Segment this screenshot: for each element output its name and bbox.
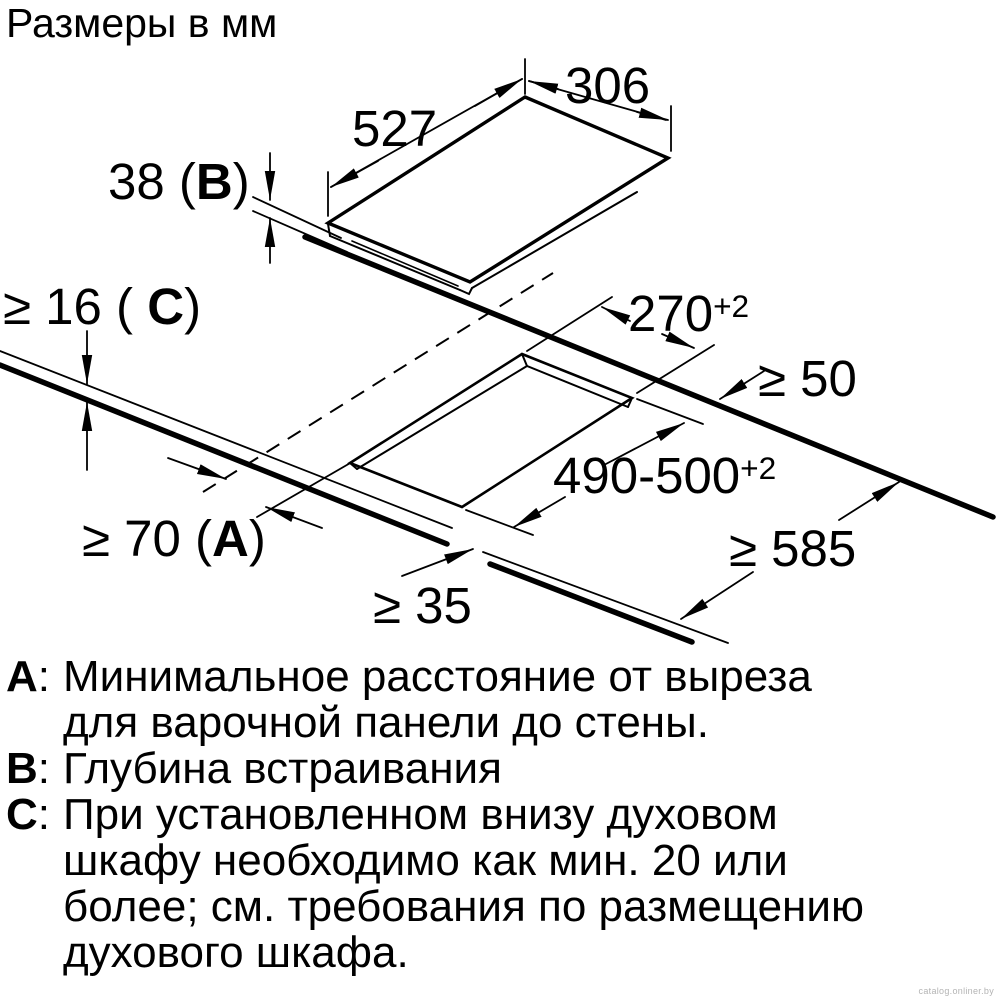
legend-text-line: шкафу необходимо как мин. 20 или: [63, 838, 926, 884]
dim-cutout-depth-label: 270+2: [628, 286, 749, 341]
dim-worktop-depth-label: ≥ 585: [729, 521, 856, 576]
legend: A: Минимальное расстояние от выреза для …: [6, 654, 926, 976]
dim-build-in-depth-label: 38 (B): [108, 154, 250, 209]
legend-item-a: A: Минимальное расстояние от выреза для …: [6, 654, 926, 746]
dim-front-clearance-label: ≥ 35: [373, 578, 472, 633]
dim-wall-clearance-label: ≥ 70 (A): [82, 511, 266, 566]
legend-text-line: более; см. требования по размещению: [63, 884, 926, 930]
watermark: catalog.onliner.by: [919, 986, 994, 996]
legend-text-line: духового шкафа.: [63, 930, 926, 976]
dim-cutout-width-label: 490-500+2: [553, 448, 776, 503]
legend-text-line: для варочной панели до стены.: [63, 700, 926, 746]
legend-text-line: Минимальное расстояние от выреза: [63, 654, 926, 700]
dim-top-width-label: 527: [352, 101, 437, 156]
legend-text-line: Глубина встраивания: [63, 746, 926, 792]
legend-key-a: A:: [6, 654, 63, 746]
legend-item-b: B: Глубина встраивания: [6, 746, 926, 792]
dim-top-depth-label: 306: [565, 58, 650, 113]
legend-item-c: C: При установленном внизу духовом шкафу…: [6, 792, 926, 976]
installation-diagram-page: { "title": "Размеры в мм", "watermark": …: [0, 0, 1000, 1000]
legend-key-b: B:: [6, 746, 63, 792]
page-title: Размеры в мм: [6, 0, 277, 47]
dim-worktop-thickness-label: ≥ 16 ( C): [3, 279, 201, 334]
dim-rear-clearance-label: ≥ 50: [758, 351, 857, 406]
legend-key-c: C:: [6, 792, 63, 976]
legend-text-line: При установленном внизу духовом: [63, 792, 926, 838]
